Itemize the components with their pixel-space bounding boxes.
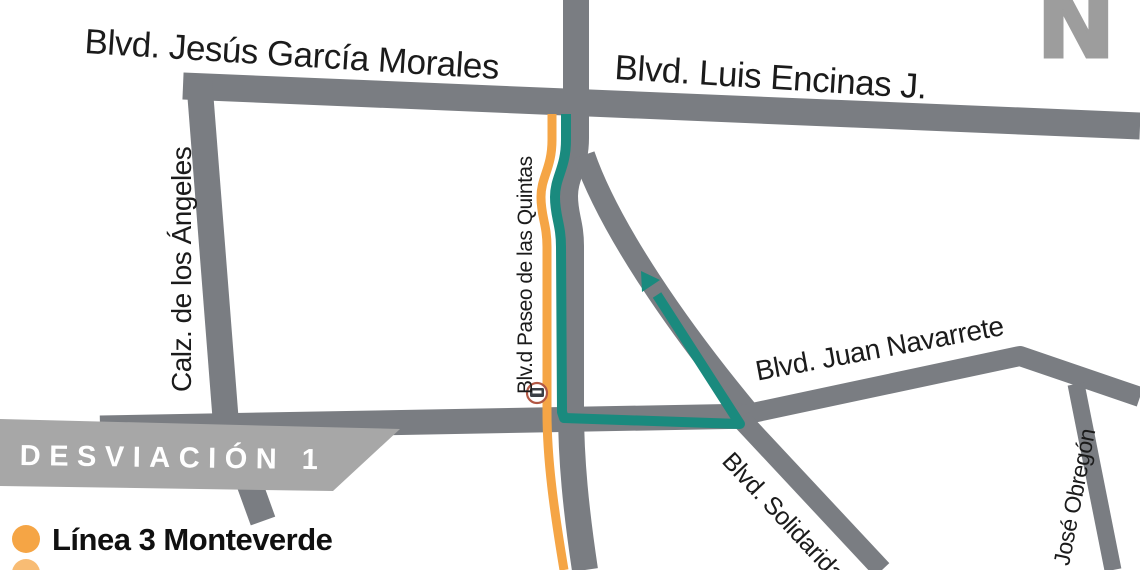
- street-label-paseo-quintas: Blv.d Paseo de las Quintas: [514, 156, 538, 394]
- street-label-calz-angeles: Calz. de los Ángeles: [166, 147, 198, 392]
- legend-dot-line3-circle: [12, 525, 40, 553]
- detour-map: N Blvd. Jesús García Morales Blvd. Luis …: [0, 0, 1140, 570]
- legend-dot-second: [12, 559, 40, 570]
- street-paseo-quintas: [565, 0, 585, 570]
- legend-label-line3: Línea 3 Monteverde: [52, 522, 332, 558]
- street-calz-angeles: [199, 78, 226, 424]
- detour-banner-title: DESVIACIÓN 1: [20, 440, 327, 477]
- north-indicator: N: [1037, 0, 1116, 80]
- legend-dot-line3: [12, 525, 40, 553]
- legend-dot-second-circle: [12, 559, 40, 570]
- street-garcia-morales-encinas: [183, 86, 1140, 126]
- street-diagonal-branch: [584, 155, 748, 412]
